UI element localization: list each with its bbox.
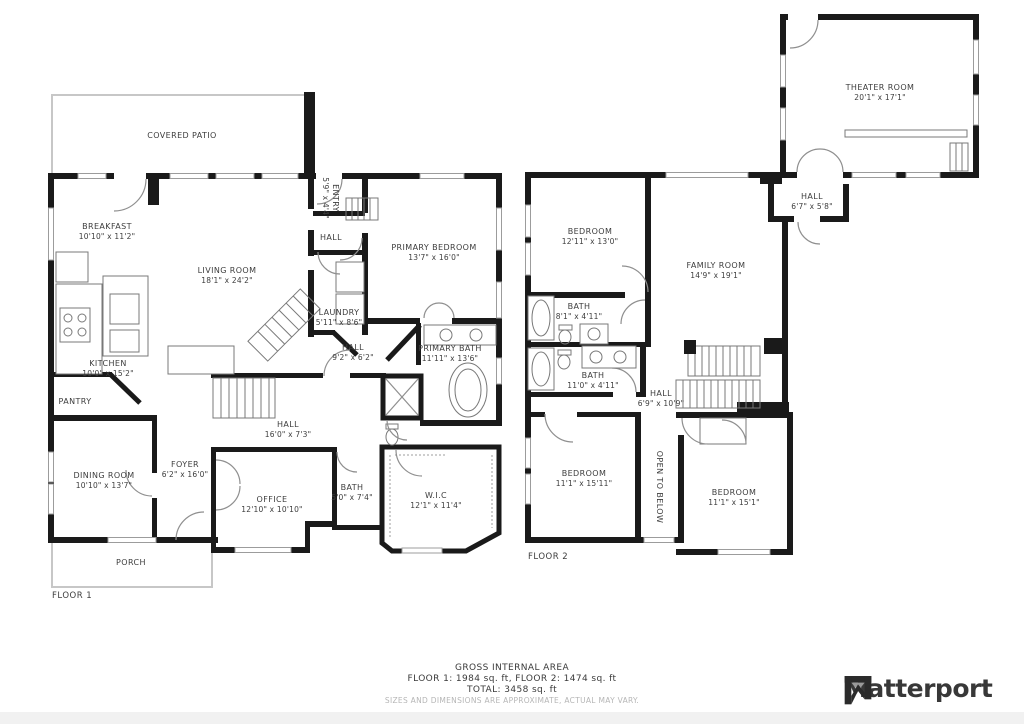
room-dims: 13'7" x 16'0" bbox=[391, 253, 476, 263]
room-name: LAUNDRY bbox=[316, 308, 363, 318]
room-label-wic: W.I.C 12'1" x 11'4" bbox=[410, 491, 461, 511]
room-dims: 8'1" x 4'11" bbox=[556, 312, 603, 322]
room-label-foyer: FOYER 6'2" x 16'0" bbox=[162, 460, 209, 480]
room-name: THEATER ROOM bbox=[846, 83, 915, 93]
room-label-hall-floor2: HALL 6'9" x 10'9" bbox=[638, 389, 685, 409]
matterport-branding: Matterport bbox=[843, 674, 992, 703]
room-label-covered-patio: COVERED PATIO bbox=[147, 131, 217, 141]
room-dims: 10'0" x 15'2" bbox=[82, 369, 133, 379]
room-dims: 18'1" x 24'2" bbox=[198, 276, 257, 286]
room-label-bath-1: BATH 8'1" x 4'11" bbox=[556, 302, 603, 322]
room-label-pantry: PANTRY bbox=[59, 397, 92, 407]
room-label-primary-bath: PRIMARY BATH 11'11" x 13'6" bbox=[418, 344, 482, 364]
room-label-porch: PORCH bbox=[116, 558, 146, 568]
room-label-laundry: LAUNDRY 5'11" x 8'6" bbox=[316, 308, 363, 328]
room-dims: 12'10" x 10'10" bbox=[241, 505, 302, 515]
room-name: BATH bbox=[556, 302, 603, 312]
room-name: BEDROOM bbox=[562, 227, 618, 237]
room-dims: 5'9" x 4'4" bbox=[320, 177, 330, 219]
room-label-breakfast: BREAKFAST 10'10" x 11'2" bbox=[79, 222, 135, 242]
floorplan-page: COVERED PATIO BREAKFAST 10'10" x 11'2" L… bbox=[0, 0, 1024, 724]
room-label-bath: BATH 5'0" x 7'4" bbox=[331, 483, 373, 503]
room-dims: 9'2" x 6'2" bbox=[332, 353, 374, 363]
room-label-hall-mid: HALL 9'2" x 6'2" bbox=[332, 343, 374, 363]
floor2-tag: FLOOR 2 bbox=[528, 552, 568, 562]
room-label-bedroom-3: BEDROOM 11'1" x 15'1" bbox=[708, 488, 759, 508]
room-name: PORCH bbox=[116, 558, 146, 567]
floorplan-drawing bbox=[0, 0, 1024, 724]
room-name: LIVING ROOM bbox=[198, 266, 257, 276]
room-name: KITCHEN bbox=[82, 359, 133, 369]
room-name: BEDROOM bbox=[708, 488, 759, 498]
room-name: BATH bbox=[567, 371, 618, 381]
bottom-band bbox=[0, 712, 1024, 724]
gross-area-title: GROSS INTERNAL AREA bbox=[0, 663, 1024, 674]
room-dims: 11'1" x 15'1" bbox=[708, 498, 759, 508]
room-name: BATH bbox=[331, 483, 373, 493]
room-dims: 5'0" x 7'4" bbox=[331, 493, 373, 503]
floor1-tag: FLOOR 1 bbox=[52, 591, 92, 601]
room-name: OPEN TO BELOW bbox=[655, 451, 664, 524]
room-dims: 6'2" x 16'0" bbox=[162, 470, 209, 480]
room-name: ENTRY bbox=[330, 177, 340, 219]
room-dims: 10'10" x 13'7" bbox=[73, 481, 134, 491]
room-label-bedroom-2: BEDROOM 11'1" x 15'11" bbox=[556, 469, 612, 489]
room-dims: 11'1" x 15'11" bbox=[556, 479, 612, 489]
room-label-hall-entry: HALL bbox=[320, 233, 342, 243]
room-label-bath-2: BATH 11'0" x 4'11" bbox=[567, 371, 618, 391]
room-label-kitchen: KITCHEN 10'0" x 15'2" bbox=[82, 359, 133, 379]
room-dims: 6'9" x 10'9" bbox=[638, 399, 685, 409]
room-name: HALL bbox=[320, 233, 342, 242]
room-label-open-to-below: OPEN TO BELOW bbox=[654, 451, 664, 524]
room-label-bedroom-1: BEDROOM 12'11" x 13'0" bbox=[562, 227, 618, 247]
room-label-office: OFFICE 12'10" x 10'10" bbox=[241, 495, 302, 515]
room-label-entry: ENTRY 5'9" x 4'4" bbox=[320, 177, 340, 219]
room-name: DINING ROOM bbox=[73, 471, 134, 481]
room-label-hall-upper: HALL 6'7" x 5'8" bbox=[791, 192, 833, 212]
stairs-floor2 bbox=[676, 338, 782, 408]
room-label-primary-bedroom: PRIMARY BEDROOM 13'7" x 16'0" bbox=[391, 243, 476, 263]
room-label-hall-lower: HALL 16'0" x 7'3" bbox=[265, 420, 312, 440]
room-dims: 12'1" x 11'4" bbox=[410, 501, 461, 511]
room-dims: 12'11" x 13'0" bbox=[562, 237, 618, 247]
room-dims: 6'7" x 5'8" bbox=[791, 202, 833, 212]
room-name: FAMILY ROOM bbox=[687, 261, 746, 271]
room-label-family-room: FAMILY ROOM 14'9" x 19'1" bbox=[687, 261, 746, 281]
matterport-logo-icon bbox=[843, 674, 873, 708]
room-name: HALL bbox=[265, 420, 312, 430]
room-name: W.I.C bbox=[410, 491, 461, 501]
room-name: PRIMARY BEDROOM bbox=[391, 243, 476, 253]
room-dims: 10'10" x 11'2" bbox=[79, 232, 135, 242]
room-name: PRIMARY BATH bbox=[418, 344, 482, 354]
room-name: COVERED PATIO bbox=[147, 131, 217, 140]
room-name: BREAKFAST bbox=[79, 222, 135, 232]
room-label-theater-room: THEATER ROOM 20'1" x 17'1" bbox=[846, 83, 915, 103]
room-dims: 11'11" x 13'6" bbox=[418, 354, 482, 364]
room-name: HALL bbox=[332, 343, 374, 353]
room-label-dining-room: DINING ROOM 10'10" x 13'7" bbox=[73, 471, 134, 491]
room-name: HALL bbox=[791, 192, 833, 202]
room-dims: 20'1" x 17'1" bbox=[846, 93, 915, 103]
room-dims: 14'9" x 19'1" bbox=[687, 271, 746, 281]
room-dims: 5'11" x 8'6" bbox=[316, 318, 363, 328]
room-label-living-room: LIVING ROOM 18'1" x 24'2" bbox=[198, 266, 257, 286]
room-name: OFFICE bbox=[241, 495, 302, 505]
room-name: HALL bbox=[638, 389, 685, 399]
room-dims: 16'0" x 7'3" bbox=[265, 430, 312, 440]
room-dims: 11'0" x 4'11" bbox=[567, 381, 618, 391]
room-name: FOYER bbox=[162, 460, 209, 470]
room-name: BEDROOM bbox=[556, 469, 612, 479]
room-name: PANTRY bbox=[59, 397, 92, 406]
